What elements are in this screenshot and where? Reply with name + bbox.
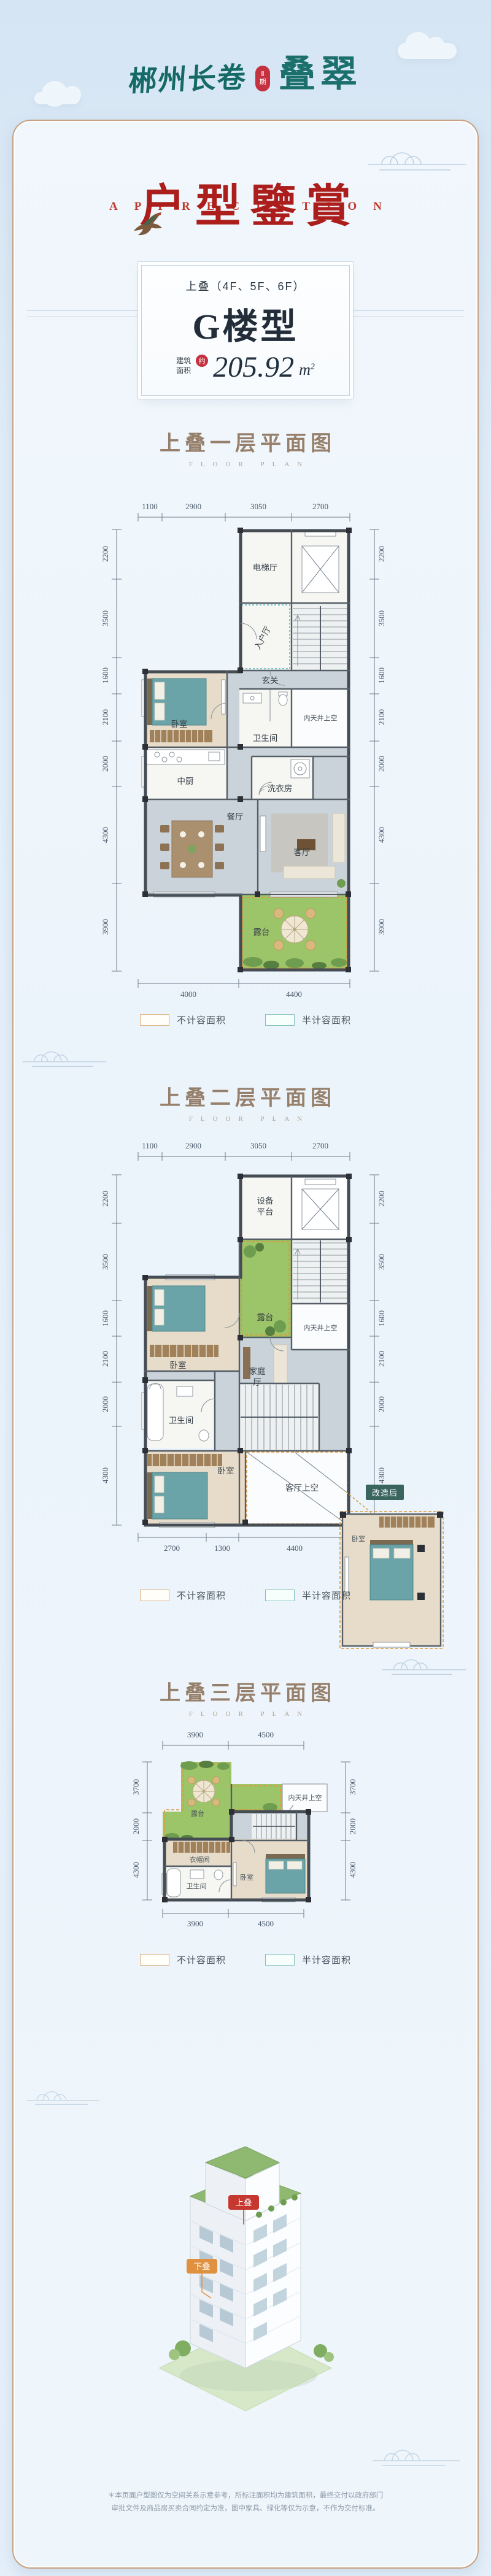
legend-swatch-teal — [265, 1014, 295, 1026]
area-label-bottom: 面积 — [176, 366, 191, 375]
legend-label: 不计容面积 — [177, 1589, 226, 1602]
dim-label: 3900 — [187, 1919, 203, 1928]
dim-label: 2000 — [131, 1818, 141, 1834]
legend-3: 不计容面积 半计容面积 — [0, 1953, 491, 1966]
dim-label: 2000 — [377, 1396, 386, 1412]
dim-label: 2000 — [101, 756, 110, 772]
dim-label: 4000 — [180, 990, 196, 999]
legend-item-noncounted: 不计容面积 — [140, 1589, 226, 1602]
room-label: 露台 — [253, 928, 270, 937]
dim-label: 2700 — [312, 502, 328, 511]
phase-seal: Ⅱ 期 — [255, 66, 270, 91]
area-label: 建筑 面积 — [176, 356, 191, 380]
disclaimer-line-1: ＊本页面户型图仅为空间关系示意参考，所标注面积均为建筑面积，最终交付以政府部门 — [0, 2489, 491, 2502]
dim-label: 4500 — [258, 1730, 274, 1739]
floor-plan-1: 1100 2900 3050 2700 2200 3500 1600 2100 … — [86, 477, 405, 1005]
phase-seal-bottom: 期 — [260, 79, 266, 87]
section-title-text: 上叠一层平面图 — [0, 426, 491, 456]
dim-label: 3500 — [377, 1254, 386, 1270]
dim-label: 2100 — [101, 1351, 110, 1367]
legend-label: 半计容面积 — [302, 1013, 351, 1026]
dim-label: 4300 — [101, 827, 110, 843]
dim-label: 3500 — [377, 610, 386, 626]
dim-label: 3900 — [187, 1730, 203, 1739]
room-label: 内天井上空 — [304, 1323, 338, 1332]
dim-label: 4300 — [377, 1467, 386, 1483]
bird-icon — [130, 209, 163, 237]
room-label: 内天井上空 — [304, 713, 338, 722]
room-label: 电梯厅 — [253, 563, 278, 572]
legend-label: 不计容面积 — [177, 1953, 226, 1966]
area-unit-sup: 2 — [311, 363, 315, 372]
legend-item-noncounted: 不计容面积 — [140, 1953, 226, 1966]
room-label: 卧室 — [170, 1360, 187, 1370]
legend-swatch-teal — [265, 1590, 295, 1601]
dim-label: 4300 — [131, 1862, 141, 1878]
room-label: 露台 — [257, 1313, 274, 1322]
dim-label: 3700 — [348, 1779, 357, 1795]
room-label: 玄关 — [262, 675, 279, 685]
room-label: 卧室 — [218, 1466, 234, 1475]
dim-label: 3900 — [377, 919, 386, 935]
dim-label: 2200 — [377, 546, 386, 562]
room-label: 露台 — [191, 1809, 204, 1818]
legend-swatch-teal — [265, 1954, 295, 1966]
legend-swatch-tan — [140, 1590, 169, 1601]
dim-label: 2900 — [185, 1141, 201, 1150]
legend-item-halfcounted: 半计容面积 — [265, 1013, 351, 1026]
dim-label: 1100 — [142, 502, 158, 511]
dim-label: 2100 — [377, 709, 386, 725]
legend-2: 不计容面积 半计容面积 — [0, 1589, 491, 1602]
legend-label: 半计容面积 — [302, 1589, 351, 1602]
room-label: 卧室 — [352, 1534, 365, 1543]
dim-label: 1300 — [214, 1544, 230, 1553]
cloud-line-icon — [18, 1040, 110, 1074]
section-title-text: 上叠三层平面图 — [0, 1676, 491, 1706]
dim-label: 1600 — [377, 667, 386, 683]
dim-label: 3500 — [101, 610, 110, 626]
area-value: 205.92 — [213, 354, 294, 380]
dim-label: 2200 — [377, 1191, 386, 1207]
dim-label: 1600 — [377, 1310, 386, 1326]
area-unit: m2 — [299, 361, 315, 380]
room-label: 家庭 — [249, 1366, 266, 1376]
room-label: 平台 — [257, 1207, 274, 1217]
poster-page: 郴州长卷 Ⅱ 期 叠翠 A P P R E C I A T I — [0, 0, 491, 2576]
dim-label: 4300 — [348, 1862, 357, 1878]
dim-label: 2000 — [101, 1396, 110, 1412]
phase-seal-top: Ⅱ — [261, 71, 264, 79]
section-subtitle-text: FLOOR PLAN — [0, 1710, 491, 1718]
section-1-title: 上叠一层平面图 FLOOR PLAN — [0, 426, 491, 468]
disclaimer: ＊本页面户型图仅为空间关系示意参考，所标注面积均为建筑面积，最终交付以政府部门 … — [0, 2489, 491, 2515]
section-title-text: 上叠二层平面图 — [0, 1081, 491, 1111]
room-label: 设备 — [257, 1196, 274, 1205]
legend-swatch-tan — [140, 1014, 169, 1026]
legend-1: 不计容面积 半计容面积 — [0, 1013, 491, 1026]
dim-label: 4500 — [258, 1919, 274, 1928]
cloud-line-icon — [23, 2081, 103, 2112]
product-name: 叠翠 — [279, 44, 362, 98]
room-label: 客厅上空 — [285, 1483, 319, 1493]
cloud-line-icon — [368, 2439, 464, 2473]
legend-item-halfcounted: 半计容面积 — [265, 1953, 351, 1966]
unit-badge: 上叠（4F、5F、6F） G楼型 建筑 面积 约 205.92 m2 — [141, 265, 350, 396]
dim-label: 4400 — [286, 990, 302, 999]
section-subtitle-text: FLOOR PLAN — [0, 1115, 491, 1123]
room-label: 客厅 — [294, 847, 311, 857]
room-label: 内天井上空 — [288, 1793, 322, 1802]
room-label: 洗衣房 — [268, 784, 293, 793]
dim-label: 2700 — [164, 1544, 180, 1553]
building-tag-lower: 下叠 — [194, 2262, 211, 2271]
section-2-title: 上叠二层平面图 FLOOR PLAN — [0, 1081, 491, 1123]
brand-logo: 郴州长卷 Ⅱ 期 叠翠 — [0, 44, 491, 98]
dim-label: 3900 — [101, 919, 110, 935]
dim-label: 2200 — [101, 1191, 110, 1207]
dim-label: 1100 — [142, 1141, 158, 1150]
dim-label: 2900 — [185, 502, 201, 511]
unit-name: G楼型 — [148, 298, 343, 349]
legend-item-noncounted: 不计容面积 — [140, 1013, 226, 1026]
room-label: 卫生间 — [169, 1416, 194, 1425]
building-tag-upper: 上叠 — [236, 2198, 252, 2207]
page-title: 户型鑒賞 — [0, 169, 491, 235]
legend-label: 不计容面积 — [177, 1013, 226, 1026]
brand-name: 郴州长卷 — [127, 55, 248, 100]
area-label-top: 建筑 — [176, 356, 191, 366]
room-label: 中厨 — [177, 777, 194, 786]
hero-title-block: A P P R E C I A T I O N 户型鑒賞 — [0, 164, 491, 256]
floor-plan-3: 3900 4500 3700 2000 4300 3700 2000 4300 … — [86, 1726, 405, 1944]
inset-room: 卧室 — [336, 1508, 447, 1652]
dim-label: 2000 — [377, 756, 386, 772]
dim-label: 2100 — [101, 709, 110, 725]
dim-label: 4400 — [287, 1544, 303, 1553]
dim-label: 4300 — [101, 1467, 110, 1483]
area-row: 建筑 面积 约 205.92 m2 — [148, 354, 343, 380]
dim-label: 2700 — [312, 1141, 328, 1150]
room-label: 厅 — [253, 1378, 261, 1387]
legend-label: 半计容面积 — [302, 1953, 351, 1966]
dim-label: 3500 — [101, 1254, 110, 1270]
section-subtitle-text: FLOOR PLAN — [0, 461, 491, 468]
room-label: 衣帽间 — [190, 1855, 210, 1864]
disclaimer-line-2: 审批文件及商品房买卖合同约定为准，图中家具、绿化等仅为示意，不作为交付标准。 — [0, 2502, 491, 2515]
legend-swatch-tan — [140, 1954, 169, 1966]
room-label: 卧室 — [171, 719, 188, 729]
room-label: 卧室 — [240, 1873, 253, 1882]
room-label: 卫生间 — [253, 734, 278, 743]
section-3-title: 上叠三层平面图 FLOOR PLAN — [0, 1676, 491, 1718]
dim-label: 3050 — [250, 1141, 266, 1150]
dim-label: 2100 — [377, 1351, 386, 1367]
dim-label: 1600 — [101, 1310, 110, 1326]
legend-item-halfcounted: 半计容面积 — [265, 1589, 351, 1602]
dim-label: 2200 — [101, 546, 110, 562]
dim-label: 1600 — [101, 667, 110, 683]
dim-label: 3700 — [131, 1779, 141, 1795]
room-label: 卫生间 — [187, 1882, 207, 1890]
area-unit-m: m — [299, 361, 311, 379]
building-illustration: 上叠 下叠 — [147, 2104, 344, 2436]
approx-seal: 约 — [196, 355, 208, 367]
dim-label: 4300 — [377, 827, 386, 843]
dim-label: 2000 — [348, 1818, 357, 1834]
stack-label: 上叠（4F、5F、6F） — [148, 278, 343, 294]
dim-label: 3050 — [250, 502, 266, 511]
room-label: 餐厅 — [227, 812, 244, 821]
